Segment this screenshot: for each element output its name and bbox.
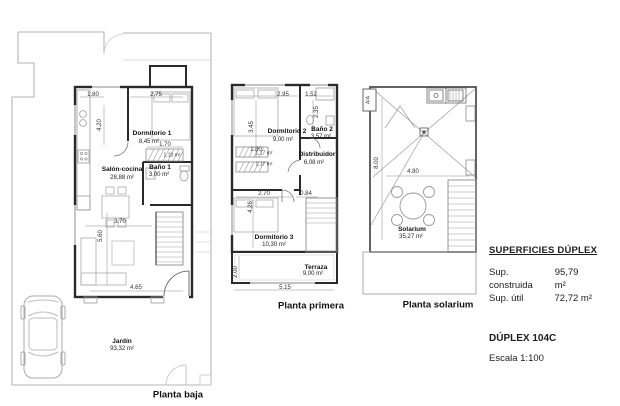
dim-terraza-height: 2.00	[233, 266, 239, 278]
room-area-distribuidor: 6,08 m²	[304, 160, 324, 166]
room-area-terraza: 9,00 m²	[303, 271, 323, 277]
dim-kitchen-width: 1.80	[87, 92, 99, 98]
dim-bottom-width: 4.65	[130, 285, 142, 291]
car-icon	[21, 296, 65, 378]
room-label-bano1: Baño 1	[149, 165, 171, 172]
room-area-jardin: 93,32 m²	[110, 346, 134, 352]
dim-dorm3-width: 2.70	[258, 191, 270, 197]
construida-label: Sup. construida	[489, 266, 555, 292]
room-label-jardin: Jardín	[112, 339, 132, 346]
room-label-distribuidor: Distribuidor	[299, 152, 336, 159]
dim-hall-width: 0.84	[300, 191, 312, 197]
room-label-dormitorio1: Dormitorio 1	[133, 131, 172, 138]
label-ac-unit: A/A	[367, 96, 372, 104]
plan-linework	[0, 0, 620, 406]
room-area-bano1: 3,00 m²	[149, 172, 169, 178]
dim-total-width: 5.15	[279, 285, 291, 291]
area-stair-flight2: 1,17 m²	[256, 163, 273, 168]
dim-dorm3-height: 4.26	[248, 201, 254, 213]
table-row: Sup. útil 72,72 m²	[489, 292, 592, 305]
dim-stair-width: 1.70	[159, 142, 171, 148]
garden-gate-arc-icon	[166, 365, 186, 385]
room-area-salon: 28,88 m²	[110, 175, 134, 181]
room-label-salon: Salón-cocina	[102, 167, 142, 174]
room-label-dormitorio2: Dormitorio 2	[268, 129, 307, 136]
gate-arc-icon	[104, 34, 123, 54]
ground-floor-walls	[75, 87, 192, 297]
solarium-plan	[363, 87, 476, 294]
room-area-dormitorio3: 10,30 m²	[262, 242, 286, 248]
porch-walls	[150, 66, 186, 87]
dim-solarium-height: 8.00	[374, 157, 380, 169]
dim-salon-width: 3.70	[114, 219, 126, 225]
dim-bano2-height: 2.35	[314, 106, 320, 118]
dim-salon-height: 5.60	[98, 230, 104, 242]
area-stair-flight1: 1,17 m²	[256, 152, 273, 157]
dim-dorm2-height: 3.45	[249, 121, 255, 133]
floor-plan-sheet: 1.80 2.75 4.20 Dormitorio 1 8,45 m² 1.70…	[0, 0, 620, 406]
room-label-dormitorio3: Dormitorio 3	[255, 235, 294, 242]
model-name: DÚPLEX 104C	[489, 333, 556, 344]
superficies-title: SUPERFICIES DÚPLEX	[489, 245, 597, 256]
scale-label: Escala 1:100	[489, 353, 544, 364]
room-area-dormitorio1: 8,45 m²	[139, 139, 159, 145]
room-area-dormitorio2: 9,00 m²	[273, 137, 293, 143]
superficies-table: Sup. construida 95,79 m² Sup. útil 72,72…	[489, 266, 592, 305]
first-floor-walls	[232, 85, 337, 252]
dim-bano2-width: 1.52	[305, 92, 317, 98]
first-floor-plan	[232, 85, 337, 290]
room-area-solarium: 35,27 m²	[399, 234, 423, 240]
area-understair: 1,10 m²	[164, 154, 181, 159]
util-value: 72,72 m²	[555, 292, 593, 305]
lower-roof-outline	[363, 252, 476, 294]
room-area-bano2: 3,57 m²	[311, 134, 331, 140]
caption-planta-baja: Planta baja	[153, 390, 203, 400]
dim-dorm2-width: 2.95	[277, 92, 289, 98]
dim-solarium-width: 4.80	[407, 169, 419, 175]
dim-dorm1-width: 2.75	[150, 92, 162, 98]
dim-kitchen-height: 4.20	[97, 119, 103, 131]
util-label: Sup. útil	[489, 292, 523, 305]
construida-value: 95,79 m²	[555, 266, 592, 292]
room-label-solarium: Solarium	[398, 227, 426, 234]
caption-planta-solarium: Planta solarium	[403, 300, 474, 310]
caption-planta-primera: Planta primera	[278, 301, 344, 311]
table-row: Sup. construida 95,79 m²	[489, 266, 592, 292]
ground-floor-plan	[75, 66, 192, 303]
room-label-bano2: Baño 2	[311, 127, 333, 134]
